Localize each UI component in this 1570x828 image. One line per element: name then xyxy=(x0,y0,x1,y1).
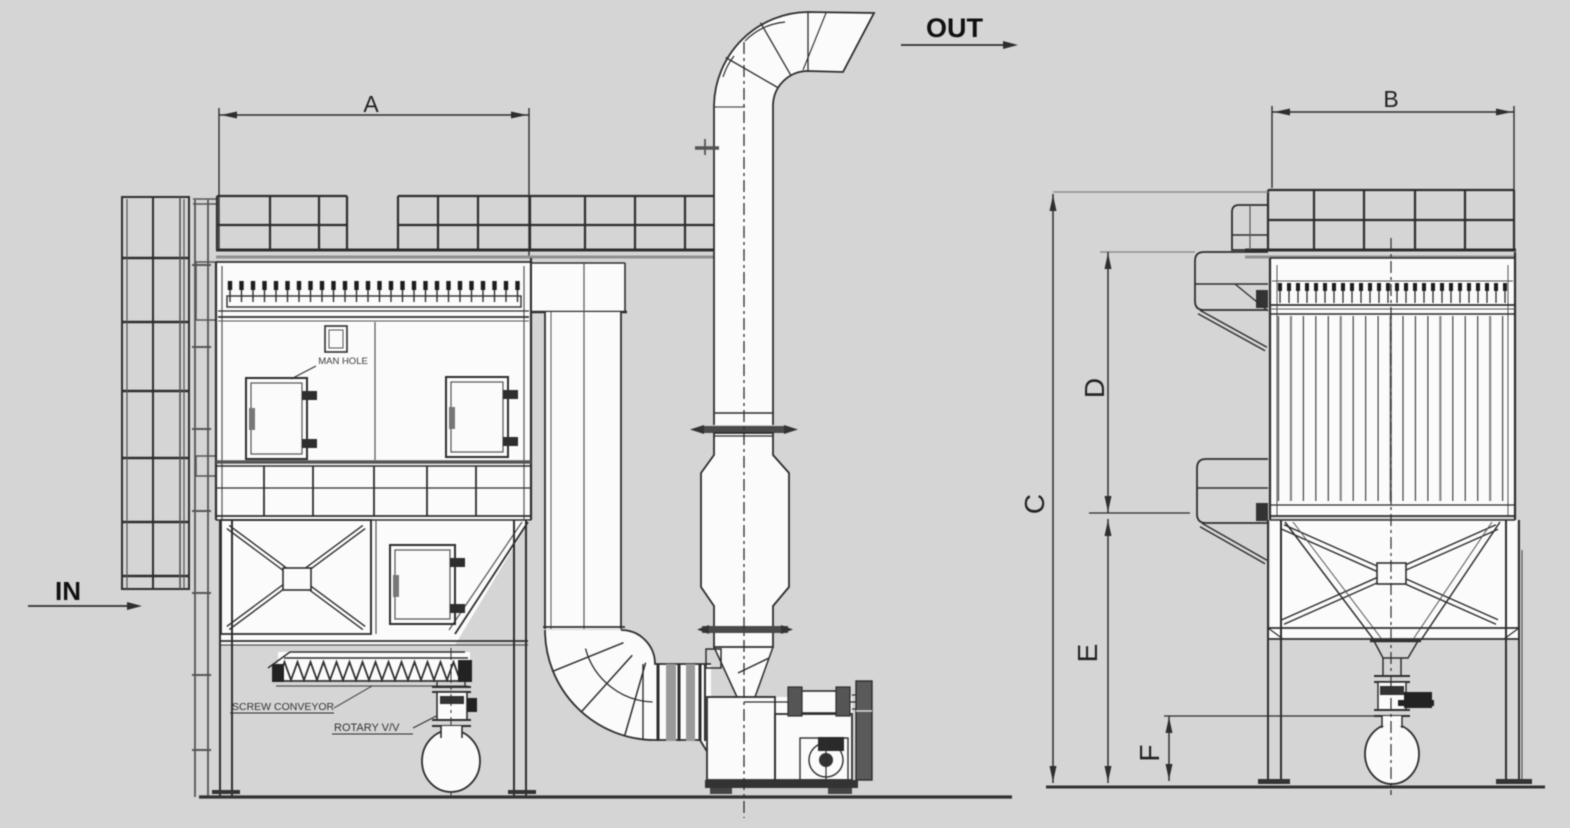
svg-text:IN: IN xyxy=(55,576,81,606)
svg-text:B: B xyxy=(1383,86,1398,112)
svg-text:C: C xyxy=(1019,494,1050,514)
svg-text:D: D xyxy=(1079,378,1110,398)
svg-text:ROTARY V/V: ROTARY V/V xyxy=(334,722,400,734)
svg-text:A: A xyxy=(363,91,379,117)
svg-text:MAN HOLE: MAN HOLE xyxy=(318,356,368,367)
svg-text:OUT: OUT xyxy=(926,13,984,43)
svg-text:E: E xyxy=(1072,644,1103,663)
svg-text:F: F xyxy=(1134,744,1165,761)
svg-text:SCREW CONVEYOR: SCREW CONVEYOR xyxy=(232,701,335,713)
